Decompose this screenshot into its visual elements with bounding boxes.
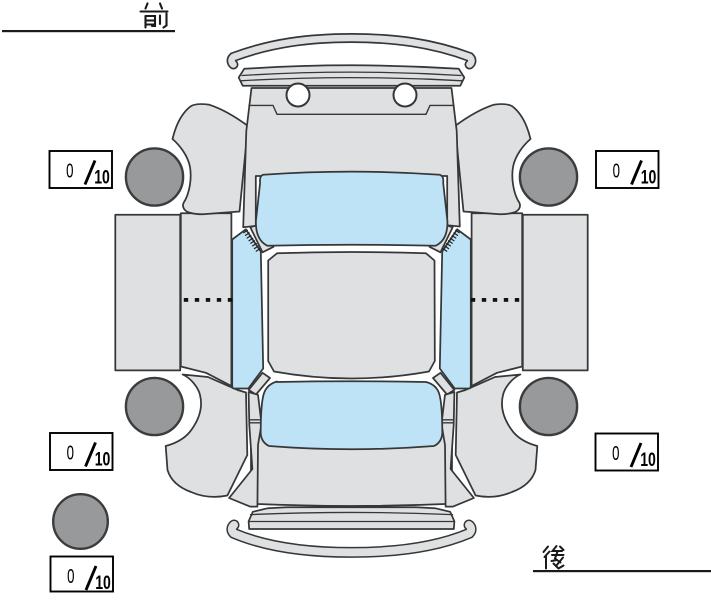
svg-text:10: 10 <box>95 448 111 470</box>
svg-text:10: 10 <box>94 166 110 188</box>
svg-text:0: 0 <box>612 442 619 464</box>
svg-text:10: 10 <box>640 449 656 471</box>
svg-text:0: 0 <box>66 160 73 182</box>
svg-text:0: 0 <box>67 442 74 464</box>
svg-text:10: 10 <box>641 166 657 188</box>
svg-text:0: 0 <box>613 160 620 182</box>
svg-text:0: 0 <box>67 565 74 587</box>
svg-text:10: 10 <box>95 572 111 594</box>
